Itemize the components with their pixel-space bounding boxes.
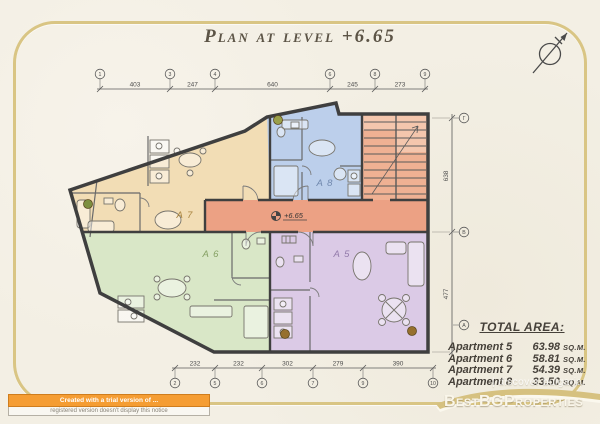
apartment-area: 63.98 xyxy=(524,342,563,354)
apartment-name: Apartment 7 xyxy=(448,365,524,377)
grid-label: 1 xyxy=(99,72,102,78)
label-a7: A 7 xyxy=(176,210,194,221)
label-a8: A 8 xyxy=(316,178,334,189)
dimension-bottom-text: 232 232 302 279 390 2 5 6 7 9 10 xyxy=(174,361,436,388)
dim-value: 279 xyxy=(333,361,344,368)
dim-value: 232 xyxy=(190,361,201,368)
dim-value: 390 xyxy=(393,361,404,368)
grid-label: 4 xyxy=(214,72,217,78)
dim-value: 247 xyxy=(187,82,198,89)
grid-label: В xyxy=(462,230,466,236)
north-arrow-icon xyxy=(533,33,567,73)
grid-label: 7 xyxy=(312,381,315,387)
level-value: +6.65 xyxy=(284,211,304,220)
grid-label: 6 xyxy=(261,381,264,387)
trial-banner-line1: Created with a trial version of ... xyxy=(8,394,210,407)
grid-label: 5 xyxy=(214,381,217,387)
area-unit: SQ.M. xyxy=(563,342,586,354)
total-area-heading: TOTAL AREA: xyxy=(448,320,596,334)
dim-value: 640 xyxy=(267,82,278,89)
dim-value: 302 xyxy=(282,361,293,368)
grid-label: 2 xyxy=(174,381,177,387)
brand-watermark: BestBGProperties xyxy=(444,393,598,411)
corridor-region xyxy=(205,200,428,232)
dim-value: 403 xyxy=(130,82,141,89)
apartment-area: 54.39 xyxy=(524,365,563,377)
grid-label: Г xyxy=(463,116,466,122)
label-a5: A 5 xyxy=(333,249,351,260)
dimension-top-text: 403 247 640 245 273 1 3 4 6 8 9 xyxy=(99,72,427,89)
grid-label: 9 xyxy=(424,72,427,78)
trial-version-banner: Created with a trial version of ... regi… xyxy=(8,394,210,416)
dim-value: 245 xyxy=(347,82,358,89)
plant-icon xyxy=(274,116,283,125)
dimension-top xyxy=(95,69,430,92)
table-row: Apartment 5 63.98 SQ.M. xyxy=(448,342,596,354)
dim-value: 638 xyxy=(443,170,450,181)
table-row: Apartment 7 54.39 SQ.M. xyxy=(448,365,596,377)
label-a6: A 6 xyxy=(202,249,220,260)
grid-label: 10 xyxy=(430,381,436,387)
grid-label: 9 xyxy=(362,381,365,387)
area-unit: SQ.M. xyxy=(563,365,586,377)
dim-value: 273 xyxy=(395,82,406,89)
grid-label: 3 xyxy=(169,72,172,78)
grid-label: 6 xyxy=(329,72,332,78)
dimension-right-text: 638 477 Г В А xyxy=(443,116,466,329)
trial-banner-line2: registered version doesn't display this … xyxy=(8,407,210,416)
plant-icon xyxy=(281,330,290,339)
dim-value: 477 xyxy=(443,288,450,299)
dimension-bottom xyxy=(170,365,438,388)
plant-icon xyxy=(408,327,417,336)
plant-icon xyxy=(84,200,93,209)
area-unit: SQ.M. xyxy=(563,354,586,366)
dim-value: 232 xyxy=(233,361,244,368)
discover-watermark: | discover bulgaria xyxy=(492,377,582,388)
apartment-name: Apartment 5 xyxy=(448,342,524,354)
grid-label: 8 xyxy=(374,72,377,78)
